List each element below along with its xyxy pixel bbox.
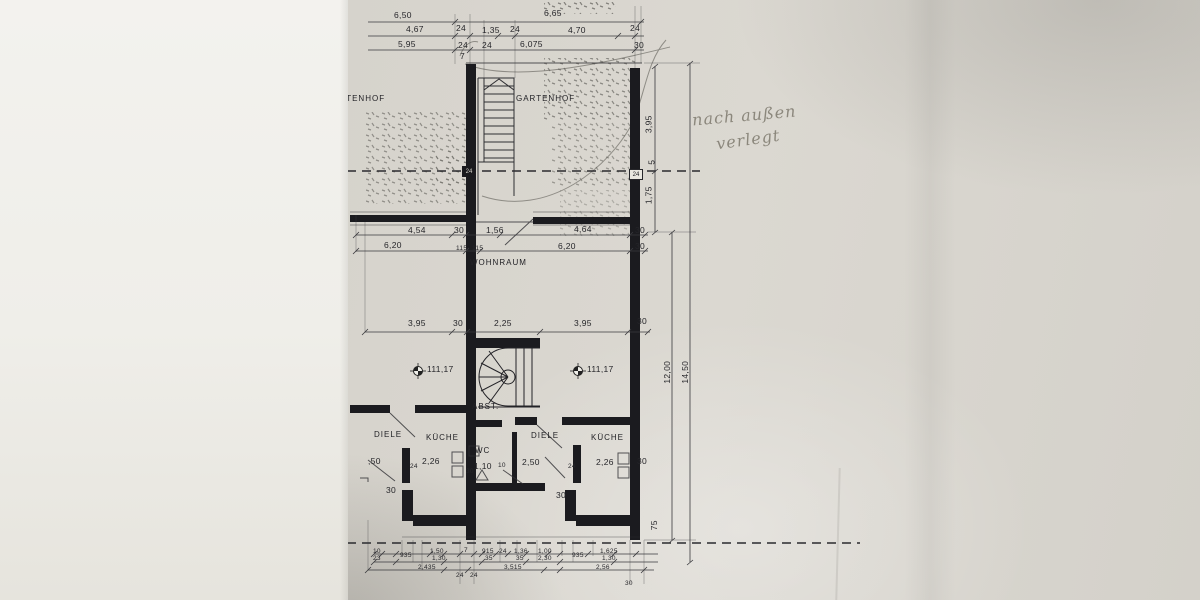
dim-label: 4,54 xyxy=(408,226,426,235)
dim-label: 1,30 xyxy=(432,556,446,563)
dim-label-vertical: 5 xyxy=(647,160,656,165)
dim-label: 3,515 xyxy=(504,565,522,572)
dim-label: 6,20 xyxy=(558,242,576,251)
photo-of-floorplan: 6,50 6,65 4,67 24 1,35 24 4,70 24 5,95 2… xyxy=(0,0,1200,600)
dim-label: 24 xyxy=(482,41,492,50)
wall-tag-left: 24 xyxy=(462,166,476,177)
dim-label: 24 xyxy=(456,24,466,33)
dim-label: 6,50 xyxy=(394,11,412,20)
dim-label: 2,56 xyxy=(596,565,610,572)
exterior-stair xyxy=(478,78,514,215)
dim-label: 30 xyxy=(454,226,464,235)
dim-label: 35 xyxy=(516,556,524,563)
room-label-wohnraum: WOHNRAUM xyxy=(470,259,527,267)
stair-step-count: 7 xyxy=(460,52,465,61)
dim-label: 24 xyxy=(568,464,576,471)
room-label-kueche-left: KÜCHE xyxy=(426,434,459,442)
room-label-kueche-right: KÜCHE xyxy=(591,434,624,442)
level-value-right: 111,17 xyxy=(587,365,614,374)
photo-left-margin xyxy=(0,0,350,600)
benchmark-symbol-right xyxy=(570,363,586,379)
dim-label-vertical: 75 xyxy=(650,520,659,530)
floorplan-sheet: 6,50 6,65 4,67 24 1,35 24 4,70 24 5,95 2… xyxy=(348,0,1200,600)
dim-label: 115 xyxy=(472,246,483,253)
dim-label: 6,075 xyxy=(520,40,543,49)
dim-label: 30 xyxy=(625,581,633,588)
dim-label: 1,10 xyxy=(474,462,492,471)
dim-label: 24 xyxy=(470,573,478,580)
dim-label: 7 xyxy=(464,548,468,555)
dim-label: 30 xyxy=(453,319,463,328)
dim-label: 4,64 xyxy=(574,225,592,234)
dim-label: 1,30 xyxy=(602,556,616,563)
level-value-left: 111,17 xyxy=(427,365,454,374)
wall-tag-right: 24 xyxy=(629,169,643,180)
dim-label: 35 xyxy=(485,556,493,563)
dim-label: 30 xyxy=(637,457,647,466)
room-label-gartenhof-left: GARTENHOF xyxy=(348,95,385,103)
dim-label: 2,435 xyxy=(418,565,436,572)
dim-label: 24 xyxy=(630,24,640,33)
dim-label: 24 xyxy=(499,549,507,556)
dim-label: 5,95 xyxy=(398,40,416,49)
dim-label: 24 xyxy=(456,573,464,580)
dim-label: 30 xyxy=(556,491,566,500)
dim-label-vertical: 1,75 xyxy=(645,186,654,204)
dim-label-vertical: 3,95 xyxy=(645,115,654,133)
dim-label: 1,56 xyxy=(486,226,504,235)
dim-label: 23 xyxy=(373,556,381,563)
dim-label: 935 xyxy=(400,553,412,560)
dim-label: ,50 xyxy=(368,457,381,466)
dim-label: 935 xyxy=(572,553,584,560)
dim-label: 115 xyxy=(456,246,467,253)
dim-label: 2,25 xyxy=(494,319,512,328)
dim-label-vertical: 14,50 xyxy=(681,361,690,384)
dim-label: 2,26 xyxy=(596,458,614,467)
room-label-abstellraum: ABST. xyxy=(472,403,499,411)
dim-label: 2,26 xyxy=(422,457,440,466)
dim-label: 10 xyxy=(498,463,506,470)
dim-label: 2,30 xyxy=(538,556,552,563)
dim-label: 30 xyxy=(466,469,474,476)
benchmark-symbol-left xyxy=(410,363,426,379)
dim-label: 6,20 xyxy=(384,241,402,250)
room-label-wc: WC xyxy=(475,447,490,455)
winder-stair xyxy=(478,348,540,407)
dim-label: 4,70 xyxy=(568,26,586,35)
dim-label: 24 xyxy=(410,464,418,471)
dim-label: 30 xyxy=(637,317,647,326)
dim-label-vertical: 12,00 xyxy=(663,361,672,384)
dim-label: 2,50 xyxy=(522,458,540,467)
plan-linework xyxy=(348,0,1200,600)
room-label-diele-right: DIELE xyxy=(531,432,559,440)
dim-label: 30 xyxy=(634,41,644,50)
dim-label: 4,67 xyxy=(406,25,424,34)
dim-label: 24 xyxy=(510,25,520,34)
room-label-gartenhof-right: GARTENHOF xyxy=(516,95,575,103)
dim-label: 24 xyxy=(458,41,468,50)
dim-label: 30 xyxy=(635,242,645,251)
dim-label: 6,65 xyxy=(544,9,562,18)
dim-label: 3,95 xyxy=(408,319,426,328)
dim-label: 3,95 xyxy=(574,319,592,328)
room-label-diele-left: DIELE xyxy=(374,431,402,439)
dim-label: 30 xyxy=(635,226,645,235)
dim-label: 1,35 xyxy=(482,26,500,35)
dim-label: 30 xyxy=(386,486,396,495)
